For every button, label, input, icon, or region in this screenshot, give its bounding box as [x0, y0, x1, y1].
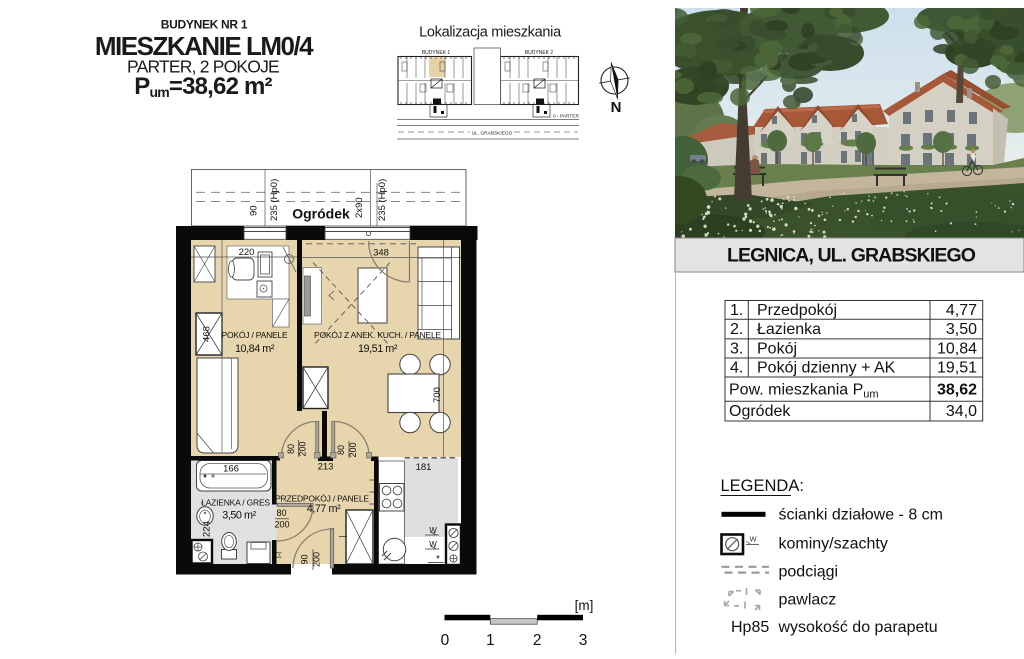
svg-text:wysokość do parapetu: wysokość do parapetu	[778, 619, 938, 636]
svg-text:700: 700	[432, 387, 443, 403]
svg-text:Pokój: Pokój	[757, 341, 797, 358]
svg-text:W: W	[749, 535, 757, 544]
svg-text:POKÓJ Z ANEK. KUCH. / PANELE: POKÓJ Z ANEK. KUCH. / PANELE	[314, 330, 442, 340]
svg-text:0 - PARTER: 0 - PARTER	[553, 114, 579, 120]
svg-text:235 (Hp0): 235 (Hp0)	[377, 179, 388, 221]
svg-text:166: 166	[223, 464, 239, 475]
svg-text:2.: 2.	[730, 321, 743, 338]
svg-text:BUDYNEK NR 1: BUDYNEK NR 1	[161, 18, 248, 32]
svg-text:200: 200	[274, 520, 289, 530]
svg-text:Ogródek: Ogródek	[729, 403, 791, 420]
svg-text:Pum=38,62 m²: Pum=38,62 m²	[134, 73, 272, 100]
svg-text:224: 224	[202, 521, 213, 537]
svg-text:PRZEDPOKÓJ / PANELE: PRZEDPOKÓJ / PANELE	[275, 494, 369, 504]
svg-text:UL. GRABSKIEGO: UL. GRABSKIEGO	[472, 131, 513, 137]
svg-text:[m]: [m]	[575, 598, 594, 613]
svg-text:90: 90	[300, 554, 310, 564]
svg-text:19,51: 19,51	[937, 360, 977, 377]
svg-text:kominy/szachty: kominy/szachty	[779, 536, 888, 553]
svg-text:38,62: 38,62	[937, 382, 977, 399]
svg-text:ŁAZIENKA / GRES: ŁAZIENKA / GRES	[201, 498, 270, 508]
svg-text:90: 90	[249, 205, 260, 216]
svg-text:220: 220	[239, 247, 255, 258]
svg-text:80: 80	[286, 444, 296, 454]
svg-text:2: 2	[533, 632, 542, 649]
svg-text:181: 181	[416, 462, 432, 473]
svg-text:Łazienka: Łazienka	[757, 321, 821, 338]
svg-text:I-I: I-I	[277, 552, 284, 558]
svg-text:200: 200	[348, 442, 358, 457]
svg-text:1: 1	[486, 632, 495, 649]
svg-text:200: 200	[298, 441, 308, 456]
svg-text:N: N	[611, 99, 622, 116]
svg-text:10,84: 10,84	[937, 341, 977, 358]
svg-text:235 (Hp0): 235 (Hp0)	[269, 179, 280, 221]
svg-text:80: 80	[336, 445, 346, 455]
svg-text:468: 468	[202, 326, 213, 342]
svg-text:LEGNICA, UL. GRABSKIEGO: LEGNICA, UL. GRABSKIEGO	[727, 245, 976, 267]
svg-text:348: 348	[373, 248, 389, 259]
svg-text:4,77: 4,77	[946, 302, 977, 319]
svg-text:34,0: 34,0	[946, 403, 977, 420]
svg-text:Ogródek: Ogródek	[292, 206, 350, 222]
svg-text:19,51 m²: 19,51 m²	[358, 343, 398, 355]
svg-text:Pokój dzienny + AK: Pokój dzienny + AK	[757, 360, 896, 377]
svg-text:ścianki działowe - 8 cm: ścianki działowe - 8 cm	[779, 507, 944, 524]
svg-text:4.: 4.	[730, 360, 743, 377]
svg-text:Hp85: Hp85	[731, 619, 769, 636]
svg-text:Lokalizacja mieszkania: Lokalizacja mieszkania	[419, 25, 562, 41]
svg-text:213: 213	[318, 462, 334, 473]
svg-text:3,50: 3,50	[946, 321, 977, 338]
svg-text:BUDYNEK 1: BUDYNEK 1	[422, 50, 451, 56]
svg-text:3.: 3.	[730, 341, 743, 358]
svg-text:POKÓJ / PANELE: POKÓJ / PANELE	[221, 330, 288, 340]
svg-text:Przedpokój: Przedpokój	[757, 302, 837, 319]
svg-text:0: 0	[441, 632, 450, 649]
svg-text:LEGENDA:: LEGENDA:	[721, 477, 804, 495]
svg-text:3,50 m²: 3,50 m²	[222, 510, 256, 522]
svg-text:pawlacz: pawlacz	[779, 592, 837, 609]
svg-text:10,84 m²: 10,84 m²	[235, 343, 275, 355]
svg-text:Pow. mieszkania Pum: Pow. mieszkania Pum	[729, 382, 879, 401]
svg-text:4,77 m²: 4,77 m²	[307, 503, 341, 515]
svg-text:80: 80	[276, 508, 286, 518]
svg-text:*: *	[436, 554, 440, 565]
svg-text:1.: 1.	[730, 302, 743, 319]
svg-text:podciągi: podciągi	[779, 564, 839, 581]
svg-text:3: 3	[579, 632, 588, 649]
svg-text:BUDYNEK 2: BUDYNEK 2	[525, 50, 554, 56]
svg-text:2x90: 2x90	[354, 197, 365, 218]
